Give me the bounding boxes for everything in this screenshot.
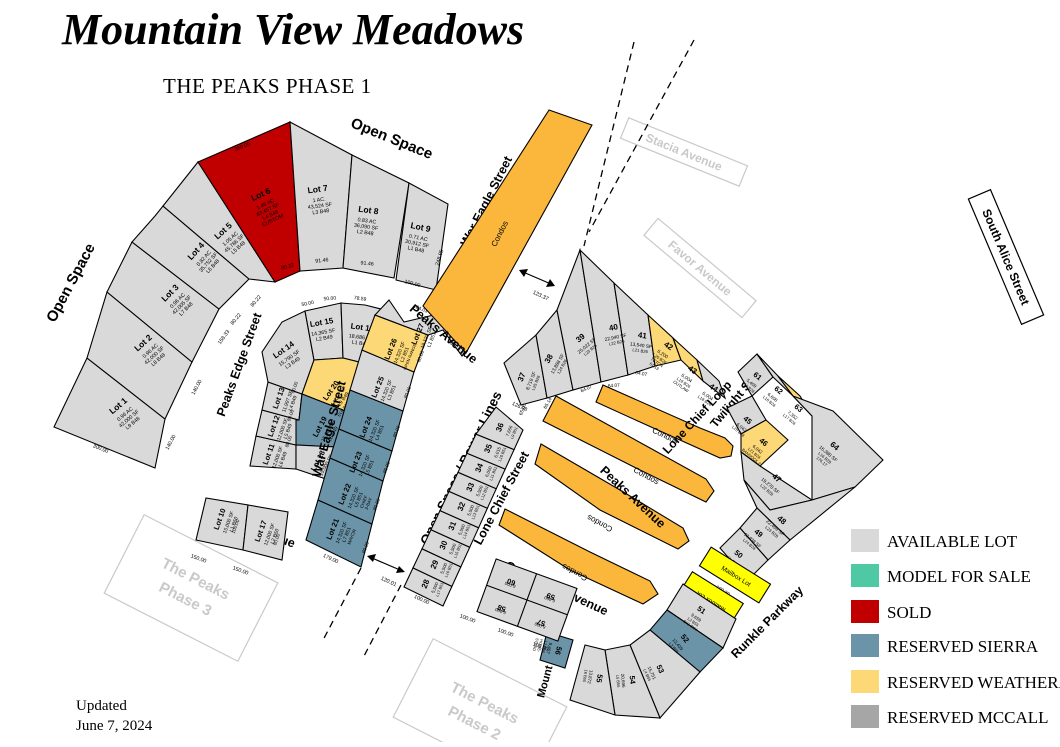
svg-text:55: 55	[594, 674, 604, 684]
svg-text:Updated: Updated	[76, 698, 127, 714]
svg-text:91.46: 91.46	[315, 257, 329, 264]
svg-text:RESERVED WEATHERALL: RESERVED WEATHERALL	[887, 673, 1060, 692]
svg-text:91.46: 91.46	[360, 260, 374, 267]
svg-text:50.00: 50.00	[323, 295, 336, 302]
svg-text:June 7, 2024: June 7, 2024	[76, 718, 153, 734]
svg-text:SOLD: SOLD	[887, 603, 931, 622]
svg-text:AVAILABLE LOT: AVAILABLE LOT	[887, 532, 1018, 551]
svg-text:54: 54	[628, 675, 638, 685]
svg-text:41: 41	[637, 330, 648, 340]
svg-text:RESERVED MCCALL: RESERVED MCCALL	[887, 708, 1049, 727]
svg-text:Mountain View Meadows: Mountain View Meadows	[61, 5, 524, 54]
svg-text:THE PEAKS PHASE 1: THE PEAKS PHASE 1	[163, 74, 372, 98]
svg-text:MODEL FOR SALE: MODEL FOR SALE	[887, 567, 1031, 586]
svg-text:RESERVED SIERRA: RESERVED SIERRA	[887, 637, 1039, 656]
